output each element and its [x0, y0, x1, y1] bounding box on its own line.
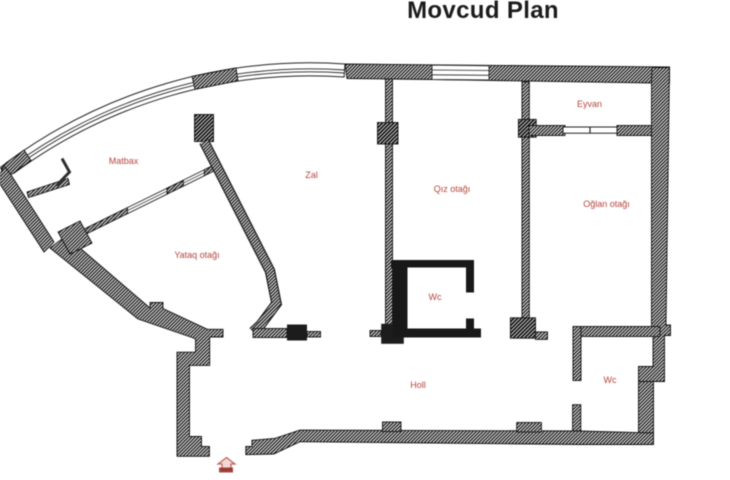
svg-text:Oğlan otağı: Oğlan otağı [583, 199, 630, 209]
svg-text:Holl: Holl [410, 380, 426, 390]
svg-text:Movcud Plan: Movcud Plan [407, 0, 559, 24]
svg-text:Yataq otağı: Yataq otağı [174, 250, 219, 260]
svg-text:Wc: Wc [604, 375, 617, 385]
svg-text:Zal: Zal [305, 170, 318, 180]
svg-text:Qız otağı: Qız otağı [434, 184, 471, 194]
svg-text:Eyvan: Eyvan [577, 99, 602, 109]
svg-text:Matbax: Matbax [109, 156, 139, 166]
svg-text:Wc: Wc [429, 292, 442, 302]
